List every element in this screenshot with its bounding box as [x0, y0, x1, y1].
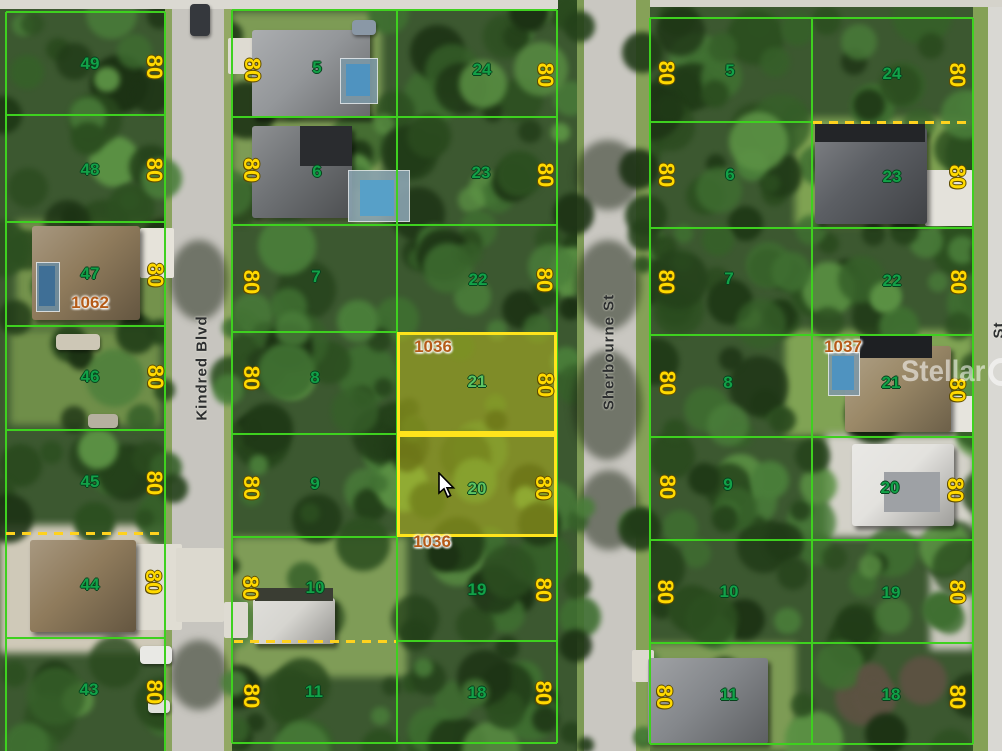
tree-canopy [551, 123, 570, 142]
lot-dimension-mid-20: 80 [530, 476, 556, 500]
lot-dimension-east-10: 80 [652, 580, 678, 604]
parcel-line [6, 637, 165, 639]
tree-canopy [10, 55, 44, 89]
tree-canopy [40, 441, 63, 464]
lot-dimension-east-19: 80 [944, 580, 970, 604]
parcel-id-label-1062-0: 1062 [71, 293, 109, 313]
roadside-tree [564, 572, 591, 599]
vehicle [190, 4, 210, 36]
parcel-line [232, 536, 397, 538]
lot-dimension-west-47: 80 [142, 263, 168, 287]
parcel-id-label-1037-3: 1037 [824, 337, 862, 357]
tree-canopy [300, 503, 320, 523]
lot-dimension-east-8: 80 [654, 371, 680, 395]
tree-canopy [457, 242, 481, 266]
tree-canopy [8, 168, 49, 209]
lot-dimension-mid-24: 80 [532, 63, 558, 87]
lot-dimension-mid-18: 80 [530, 681, 556, 705]
tree-canopy [414, 658, 433, 677]
tree-canopy [774, 608, 801, 635]
lot-number-mid-11: 11 [305, 682, 323, 702]
parcel-line [811, 18, 813, 744]
tree-canopy [518, 120, 542, 144]
lot-dimension-mid-9: 80 [238, 476, 264, 500]
tree-canopy [369, 474, 388, 493]
parcel-line [6, 325, 165, 327]
swimming-pool [832, 356, 854, 390]
tree-canopy [136, 509, 154, 527]
parcel-line [5, 12, 7, 751]
roadside-tree [553, 193, 594, 234]
parcel-line [6, 221, 165, 223]
tree-canopy [769, 407, 796, 434]
tree-canopy [875, 598, 911, 634]
lot-dimension-mid-11: 80 [238, 684, 264, 708]
parcel-line [232, 433, 397, 435]
tree-canopy [841, 24, 877, 60]
vehicle [140, 646, 172, 664]
tree-canopy [707, 404, 749, 446]
road-surface [636, 0, 650, 751]
swimming-pool [360, 180, 394, 216]
roadside-tree [619, 509, 661, 551]
tree-canopy [21, 13, 44, 36]
tree-canopy [751, 461, 789, 499]
driveway [176, 548, 224, 622]
swimming-pool [346, 64, 370, 96]
lot-dimension-mid-21: 80 [532, 373, 558, 397]
lot-number-west-44: 44 [81, 575, 100, 595]
lot-number-west-47: 47 [81, 264, 100, 284]
lot-number-east-11: 11 [720, 685, 738, 705]
lot-dimension-mid-8: 80 [238, 366, 264, 390]
tree-canopy [701, 80, 729, 108]
dashed-lot-line [234, 640, 396, 643]
roadside-tree [577, 737, 593, 751]
lot-dimension-east-6: 80 [653, 163, 679, 187]
lot-number-mid-20: 20 [468, 479, 487, 499]
driveway [224, 602, 248, 638]
tree-canopy [812, 6, 841, 35]
tree-canopy [918, 33, 944, 59]
tree-canopy [656, 7, 705, 56]
lot-dimension-west-44: 80 [140, 570, 166, 594]
lot-dimension-east-18: 80 [944, 685, 970, 709]
tree-shadow-on-road [170, 640, 228, 710]
lot-number-west-48: 48 [81, 160, 100, 180]
tree-canopy [458, 187, 485, 214]
house-roof-section [300, 126, 352, 166]
tree-canopy [116, 314, 155, 353]
tree-canopy [382, 677, 401, 696]
lot-number-mid-5: 5 [312, 58, 321, 78]
lot-number-west-45: 45 [81, 472, 100, 492]
tree-canopy [765, 523, 804, 562]
vehicle [352, 20, 376, 35]
roadside-tree [559, 629, 592, 662]
lot-dimension-west-46: 80 [142, 365, 168, 389]
lot-dimension-east-22: 80 [945, 270, 971, 294]
parcel-line [232, 742, 557, 744]
tree-shadow-on-road [170, 240, 228, 320]
tree-canopy [361, 729, 399, 751]
tree-canopy [853, 89, 885, 121]
parcel-line [232, 331, 397, 333]
house [253, 598, 335, 644]
tree-canopy [859, 554, 882, 577]
tree-canopy [822, 545, 847, 570]
lot-number-mid-8: 8 [310, 368, 319, 388]
lot-number-mid-23: 23 [472, 163, 491, 183]
tree-canopy [836, 606, 875, 645]
roadside-tree [564, 11, 595, 42]
lot-number-mid-18: 18 [468, 683, 487, 703]
tree-canopy [777, 558, 809, 590]
tree-canopy [249, 455, 268, 474]
lot-dimension-east-9: 80 [654, 475, 680, 499]
lot-number-west-49: 49 [81, 54, 100, 74]
street-name-right-street-partial: St [991, 322, 1002, 339]
lot-number-east-21: 21 [882, 373, 901, 393]
parcel-line [650, 121, 812, 123]
parcel-line [6, 114, 165, 116]
lot-dimension-west-45: 80 [141, 471, 167, 495]
tree-canopy [242, 403, 294, 455]
tree-canopy [862, 222, 885, 245]
lot-dimension-mid-7: 80 [238, 270, 264, 294]
street-name-sherbourne-st: Sherbourne St [601, 294, 618, 410]
lot-dimension-east-7: 80 [653, 270, 679, 294]
lot-number-mid-7: 7 [311, 267, 320, 287]
tree-canopy [663, 419, 687, 443]
road-surface [650, 0, 1002, 7]
lot-number-mid-6: 6 [312, 162, 321, 182]
parcel-line [231, 10, 233, 743]
lot-dimension-east-20: 80 [942, 478, 968, 502]
lot-number-mid-19: 19 [468, 580, 487, 600]
lot-number-east-24: 24 [883, 64, 902, 84]
tree-canopy [760, 47, 790, 77]
watermark-brand-left: Stellar [901, 355, 985, 389]
tree-canopy [74, 502, 114, 542]
lot-number-mid-22: 22 [469, 270, 488, 290]
tree-canopy [482, 545, 536, 599]
lot-number-east-19: 19 [882, 583, 901, 603]
lot-number-east-22: 22 [883, 271, 902, 291]
tree-canopy [761, 174, 780, 193]
street-name-kindred-blvd: Kindred Blvd [194, 315, 211, 420]
tree-canopy [371, 707, 390, 726]
vehicle [88, 414, 118, 428]
watermark: StellarMLS [901, 355, 1002, 389]
parcel-line [232, 224, 557, 226]
lot-dimension-mid-10: 80 [237, 576, 263, 600]
parcel-line [397, 640, 557, 642]
tree-canopy [78, 429, 118, 469]
parcel-id-label-1036-1: 1036 [414, 337, 452, 357]
tree-canopy [899, 656, 948, 705]
tree-canopy [337, 300, 379, 342]
parcel-line [232, 116, 557, 118]
dashed-lot-line [813, 121, 972, 124]
tree-canopy [800, 467, 837, 504]
tree-canopy [708, 33, 737, 62]
swimming-pool [39, 266, 55, 306]
lot-number-mid-10: 10 [306, 578, 325, 598]
lot-number-east-23: 23 [883, 167, 902, 187]
lot-number-mid-9: 9 [310, 474, 319, 494]
tree-canopy [331, 387, 379, 435]
lot-number-west-43: 43 [80, 680, 99, 700]
mouse-cursor-icon [438, 472, 458, 500]
lot-dimension-west-43: 80 [141, 680, 167, 704]
tree-canopy [258, 343, 314, 399]
parcel-line [6, 11, 165, 13]
lot-number-west-46: 46 [81, 367, 100, 387]
tree-canopy [27, 667, 85, 725]
parcel-line [232, 9, 557, 11]
lot-number-east-8: 8 [723, 373, 732, 393]
parcel-id-label-1036-2: 1036 [413, 532, 451, 552]
lot-dimension-east-23: 80 [944, 165, 970, 189]
lot-number-east-5: 5 [725, 61, 734, 81]
tree-canopy [336, 517, 390, 571]
lot-number-mid-21: 21 [468, 372, 487, 392]
dashed-lot-line [6, 532, 165, 535]
tree-canopy [374, 378, 393, 397]
tree-canopy [407, 114, 451, 158]
lot-number-mid-24: 24 [473, 60, 492, 80]
tree-canopy [736, 299, 786, 349]
parcel-line [6, 429, 165, 431]
parcel-line [649, 18, 651, 744]
house [815, 128, 927, 224]
tree-canopy [655, 94, 684, 123]
lot-dimension-mid-19: 80 [530, 578, 556, 602]
road-surface [0, 0, 558, 9]
lot-dimension-east-5: 80 [653, 61, 679, 85]
lot-dimension-east-11: 80 [651, 685, 677, 709]
lot-dimension-mid-23: 80 [532, 163, 558, 187]
watermark-flower-icon [988, 358, 1002, 386]
lot-dimension-east-24: 80 [944, 63, 970, 87]
lot-dimension-west-49: 80 [141, 55, 167, 79]
vehicle [56, 334, 100, 350]
lot-dimension-mid-22: 80 [531, 268, 557, 292]
lot-number-east-6: 6 [725, 165, 734, 185]
lot-number-east-9: 9 [723, 475, 732, 495]
tree-canopy [399, 619, 431, 651]
tree-canopy [71, 122, 105, 156]
tree-canopy [930, 729, 973, 751]
tree-canopy [865, 713, 907, 751]
aerial-plat-map: 4980488047804680458044804380580680780880… [0, 0, 1002, 751]
lot-number-east-7: 7 [724, 269, 733, 289]
roadside-tree [628, 219, 659, 250]
lot-dimension-mid-5: 80 [239, 58, 265, 82]
lot-dimension-west-48: 80 [141, 158, 167, 182]
lot-dimension-mid-6: 80 [238, 158, 264, 182]
lot-number-east-18: 18 [882, 685, 901, 705]
tree-canopy [696, 167, 742, 213]
lot-number-east-10: 10 [720, 582, 739, 602]
lot-number-east-20: 20 [881, 478, 900, 498]
house-roof-section [815, 124, 925, 142]
tree-canopy [681, 538, 711, 568]
